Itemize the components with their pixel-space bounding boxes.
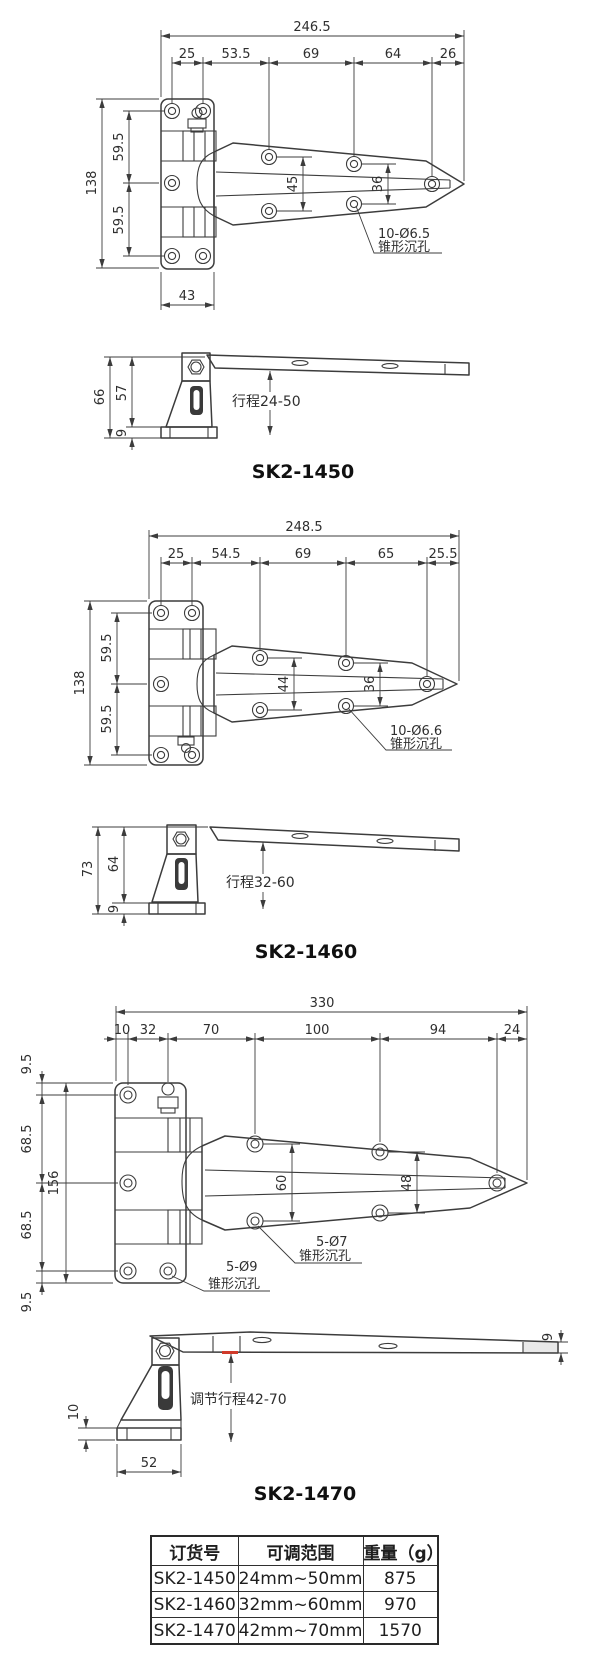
pivot-1470 bbox=[158, 1083, 202, 1244]
side-base-1450 bbox=[161, 427, 217, 438]
side-base-1460 bbox=[149, 903, 205, 914]
dim-1460-inner2: 36 bbox=[363, 676, 378, 693]
header-adjustable-range: 可调范围 bbox=[238, 1536, 363, 1566]
dim-1450-total: 246.5 bbox=[293, 20, 330, 35]
dim-1470-total: 330 bbox=[310, 996, 335, 1011]
drawing-sheet: 246.5 25 53.5 69 64 26 138 59.5 59.5 bbox=[0, 0, 600, 1659]
note-1460-line2: 锥形沉孔 bbox=[390, 737, 442, 752]
dim-1450-base: 43 bbox=[179, 289, 196, 304]
dim-1460-side-total: 73 bbox=[81, 861, 96, 878]
cell-weight-1450: 875 bbox=[363, 1566, 438, 1592]
sk2-1460-side-view: 73 64 9 行程32-60 bbox=[81, 825, 459, 926]
dim-1460-height: 138 bbox=[73, 671, 88, 696]
side-bracket-body-1450 bbox=[166, 381, 212, 427]
dim-1470-base-height: 10 bbox=[67, 1404, 82, 1421]
dim-1470-seg3: 70 bbox=[203, 1023, 220, 1038]
dim-1450-seg5: 26 bbox=[440, 47, 457, 62]
dim-1470-inner2: 48 bbox=[400, 1175, 415, 1192]
header-weight: 重量（g） bbox=[363, 1536, 438, 1566]
pivot-1460 bbox=[178, 629, 216, 753]
arm-1460 bbox=[214, 646, 457, 722]
dim-1470-seg1: 10 bbox=[114, 1023, 131, 1038]
cell-range-1450: 24mm~50mm bbox=[238, 1566, 363, 1592]
title-sk2-1470: SK2-1470 bbox=[254, 1483, 356, 1505]
pivot-1450 bbox=[183, 108, 216, 237]
dim-1470-base-width: 52 bbox=[141, 1456, 158, 1471]
dim-1450-seg2: 53.5 bbox=[222, 47, 251, 62]
note-1470-arm-line2: 锥形沉孔 bbox=[299, 1249, 351, 1264]
stroke-label-1470: 调节行程42-70 bbox=[190, 1392, 287, 1408]
note-1470-plate-line1: 5-Ø9 bbox=[226, 1260, 257, 1275]
dim-1450-hseg1: 59.5 bbox=[112, 133, 127, 162]
arm-1450 bbox=[214, 143, 464, 225]
spec-table: 订货号 可调范围 重量（g） SK2-1450 24mm~50mm 875 SK… bbox=[150, 1535, 439, 1645]
cell-weight-1460: 970 bbox=[363, 1592, 438, 1618]
spec-table-header-row: 订货号 可调范围 重量（g） bbox=[151, 1536, 438, 1566]
dim-1450-inner1: 45 bbox=[286, 176, 301, 193]
sk2-1460-top-view: 248.5 25 54.5 69 65 25.5 138 59.5 59.5 bbox=[73, 520, 459, 765]
sk2-1450-side-view: 66 57 9 行程24-50 bbox=[93, 353, 469, 450]
side-bracket-head-1460 bbox=[167, 825, 196, 854]
dim-1460-seg2: 54.5 bbox=[212, 547, 241, 562]
arm-1470 bbox=[202, 1136, 527, 1230]
dim-1460-hseg1: 59.5 bbox=[100, 634, 115, 663]
cell-model-1450: SK2-1450 bbox=[151, 1566, 238, 1592]
dim-1460-total: 248.5 bbox=[285, 520, 322, 535]
sk2-1470-top-view: 330 10 32 70 100 94 24 156 9.5 68.5 68.5… bbox=[20, 996, 527, 1312]
dim-1450-side-base: 9 bbox=[115, 429, 130, 437]
dim-1470-seg4: 100 bbox=[305, 1023, 330, 1038]
note-1470-plate-line2: 锥形沉孔 bbox=[208, 1277, 260, 1292]
stroke-label-1450: 行程24-50 bbox=[232, 394, 301, 410]
dim-1460-side-upper: 64 bbox=[107, 856, 122, 873]
dim-1450-inner2: 36 bbox=[371, 176, 386, 193]
dim-1460-seg5: 25.5 bbox=[429, 547, 458, 562]
grease-fitting-1470 bbox=[162, 1083, 174, 1095]
dim-1450-seg1: 25 bbox=[179, 47, 196, 62]
dim-1460-hseg2: 59.5 bbox=[100, 705, 115, 734]
dim-1460-side-base: 9 bbox=[107, 905, 122, 913]
dim-1470-inner1: 60 bbox=[275, 1175, 290, 1192]
cell-model-1470: SK2-1470 bbox=[151, 1618, 238, 1645]
dim-1470-seg2: 32 bbox=[140, 1023, 157, 1038]
dim-1470-hseg4: 9.5 bbox=[20, 1292, 35, 1313]
side-strap-1470 bbox=[150, 1332, 558, 1353]
dim-1460-seg1: 25 bbox=[168, 547, 185, 562]
dim-1460-seg3: 69 bbox=[295, 547, 312, 562]
sk2-1470-side-view: 10 52 9 调节行程42-70 bbox=[67, 1330, 568, 1477]
cell-weight-1470: 1570 bbox=[363, 1618, 438, 1645]
table-row: SK2-1460 32mm~60mm 970 bbox=[151, 1592, 438, 1618]
hinge-drawings: 246.5 25 53.5 69 64 26 138 59.5 59.5 bbox=[0, 0, 600, 1520]
dim-1470-hseg2: 68.5 bbox=[20, 1125, 35, 1154]
dim-1450-side-upper: 57 bbox=[115, 385, 130, 402]
dim-1470-hseg3: 68.5 bbox=[20, 1211, 35, 1240]
side-strap-1450 bbox=[207, 355, 469, 375]
table-row: SK2-1470 42mm~70mm 1570 bbox=[151, 1618, 438, 1645]
dim-1450-hseg2: 59.5 bbox=[112, 206, 127, 235]
header-order-no: 订货号 bbox=[151, 1536, 238, 1566]
dim-1470-seg5: 94 bbox=[430, 1023, 447, 1038]
dim-1470-hseg1: 9.5 bbox=[20, 1054, 35, 1075]
dim-1460-seg4: 65 bbox=[378, 547, 395, 562]
dim-1450-height: 138 bbox=[85, 171, 100, 196]
dim-1450-side-total: 66 bbox=[93, 389, 108, 406]
dim-1470-height: 156 bbox=[47, 1171, 62, 1196]
dim-1470-seg6: 24 bbox=[504, 1023, 521, 1038]
table-row: SK2-1450 24mm~50mm 875 bbox=[151, 1566, 438, 1592]
dim-1460-inner1: 44 bbox=[277, 676, 292, 693]
sk2-1450-top-view: 246.5 25 53.5 69 64 26 138 59.5 59.5 bbox=[85, 20, 464, 310]
stroke-label-1460: 行程32-60 bbox=[226, 875, 295, 891]
dim-1450-seg3: 69 bbox=[303, 47, 320, 62]
title-sk2-1460: SK2-1460 bbox=[255, 941, 357, 963]
title-sk2-1450: SK2-1450 bbox=[252, 461, 354, 483]
side-strap-1460 bbox=[210, 827, 459, 851]
cell-model-1460: SK2-1460 bbox=[151, 1592, 238, 1618]
cell-range-1470: 42mm~70mm bbox=[238, 1618, 363, 1645]
note-1470-arm-line1: 5-Ø7 bbox=[316, 1235, 347, 1250]
plate-holes-1470 bbox=[120, 1087, 176, 1279]
cell-range-1460: 32mm~60mm bbox=[238, 1592, 363, 1618]
dim-1470-strap-thickness: 9 bbox=[541, 1333, 556, 1341]
note-1450-line2: 锥形沉孔 bbox=[378, 240, 430, 255]
dim-1450-seg4: 64 bbox=[385, 47, 402, 62]
